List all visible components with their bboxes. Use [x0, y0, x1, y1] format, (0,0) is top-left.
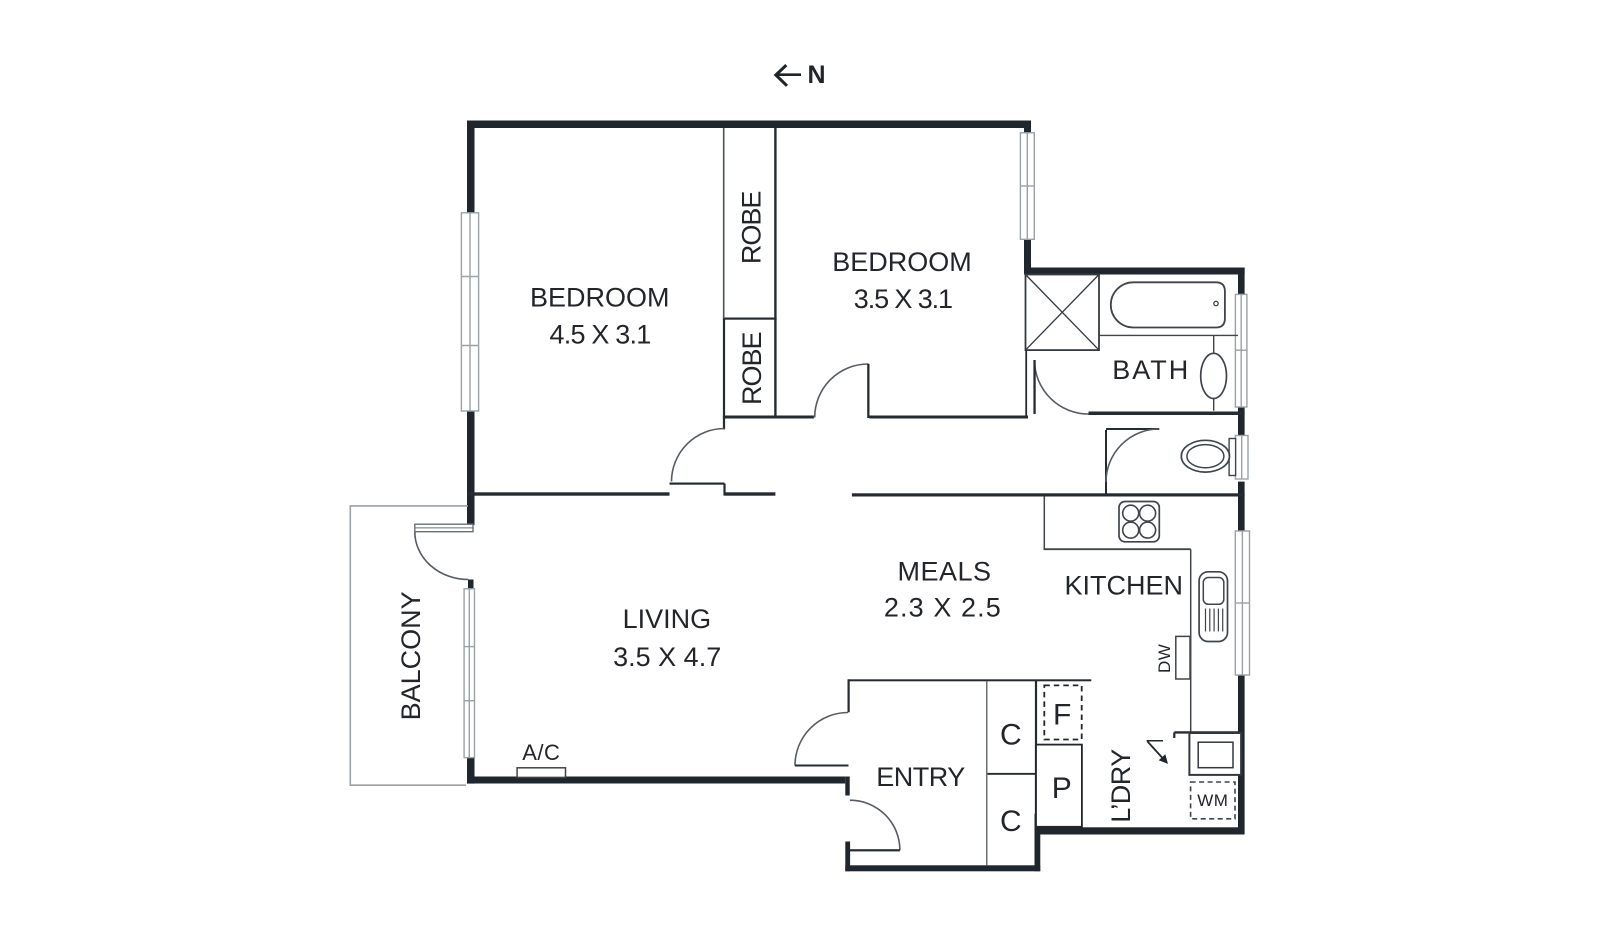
svg-text:LIVING: LIVING	[623, 604, 712, 634]
svg-text:DW: DW	[1155, 644, 1174, 673]
svg-text:F: F	[1053, 699, 1071, 732]
svg-text:BATH: BATH	[1112, 355, 1190, 385]
svg-text:WM: WM	[1197, 791, 1228, 810]
svg-text:ROBE: ROBE	[737, 332, 767, 405]
svg-text:C: C	[1000, 718, 1022, 751]
svg-text:ROBE: ROBE	[737, 192, 767, 265]
svg-text:N: N	[807, 61, 825, 89]
svg-text:BEDROOM: BEDROOM	[832, 247, 972, 277]
svg-text:3.5 X 3.1: 3.5 X 3.1	[854, 284, 952, 314]
svg-text:ENTRY: ENTRY	[876, 762, 965, 792]
svg-text:4.5 X 3.1: 4.5 X 3.1	[550, 320, 651, 350]
svg-text:2.3 X 2.5: 2.3 X 2.5	[884, 593, 1002, 623]
svg-text:BALCONY: BALCONY	[396, 591, 426, 720]
svg-text:MEALS: MEALS	[897, 557, 991, 587]
svg-text:C: C	[1000, 805, 1022, 838]
svg-text:L’DRY: L’DRY	[1106, 749, 1136, 823]
svg-text:P: P	[1052, 772, 1072, 805]
svg-text:3.5 X 4.7: 3.5 X 4.7	[613, 642, 721, 672]
svg-text:KITCHEN: KITCHEN	[1065, 571, 1184, 601]
svg-text:A/C: A/C	[522, 740, 560, 765]
svg-text:BEDROOM: BEDROOM	[530, 282, 670, 312]
